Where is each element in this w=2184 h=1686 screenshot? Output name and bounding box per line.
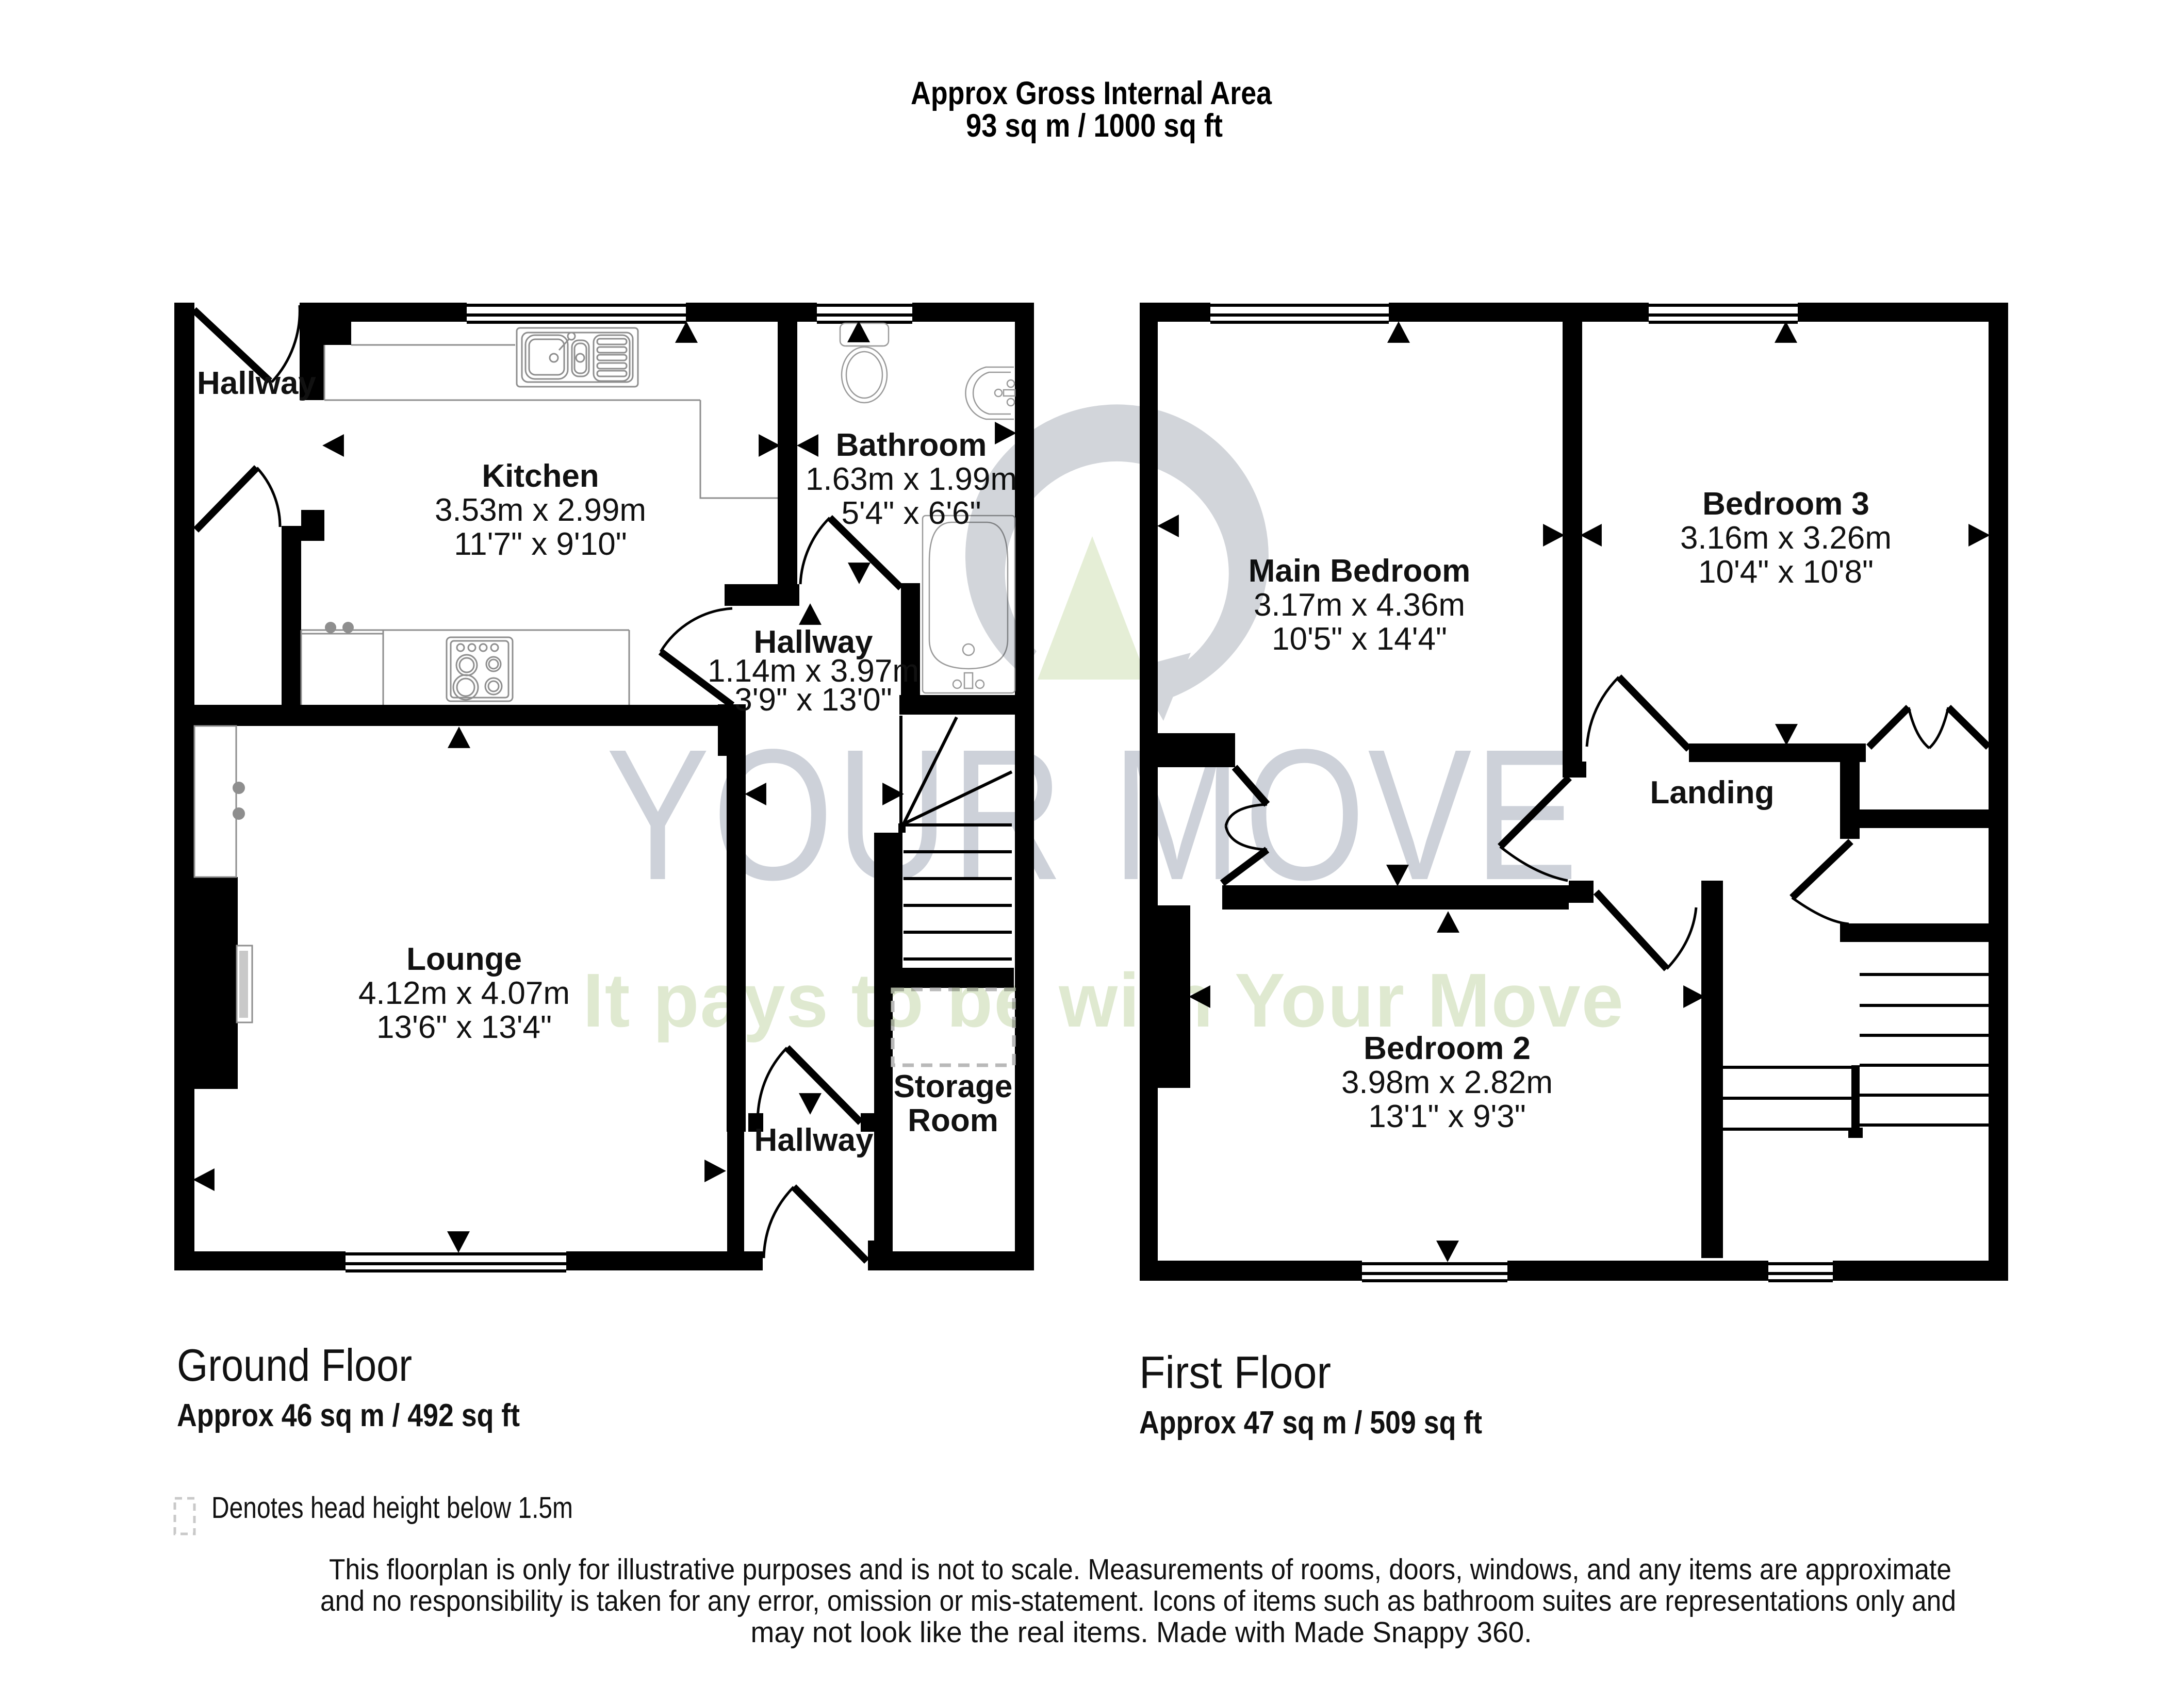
svg-text:Hallway: Hallway [197, 366, 316, 401]
svg-text:4.12m x 4.07m: 4.12m x 4.07m [358, 976, 570, 1011]
svg-text:Bathroom: Bathroom [836, 427, 987, 463]
svg-text:Ground Floor: Ground Floor [177, 1340, 412, 1391]
svg-text:Landing: Landing [1650, 775, 1774, 811]
svg-text:13'6" x 13'4": 13'6" x 13'4" [376, 1010, 552, 1045]
svg-text:First Floor: First Floor [1139, 1347, 1331, 1398]
svg-text:It pays to be with Your Move: It pays to be with Your Move [583, 958, 1624, 1043]
svg-text:Kitchen: Kitchen [482, 458, 599, 494]
svg-text:Lounge: Lounge [406, 941, 522, 977]
svg-text:Hallway: Hallway [754, 1122, 874, 1158]
svg-text:This floorplan is only for ill: This floorplan is only for illustrative … [329, 1553, 1951, 1586]
svg-text:and no responsibility is taken: and no responsibility is taken for any e… [320, 1584, 1956, 1617]
svg-text:13'1" x 9'3": 13'1" x 9'3" [1368, 1099, 1526, 1134]
svg-text:93 sq m / 1000 sq ft: 93 sq m / 1000 sq ft [966, 108, 1223, 144]
svg-text:Approx 47 sq m / 509 sq ft: Approx 47 sq m / 509 sq ft [1139, 1405, 1482, 1441]
svg-text:may not look like the real ite: may not look like the real items. Made w… [751, 1616, 1532, 1649]
svg-text:Storage: Storage [894, 1069, 1013, 1104]
svg-text:11'7" x 9'10": 11'7" x 9'10" [454, 526, 627, 562]
svg-text:Main Bedroom: Main Bedroom [1249, 553, 1471, 589]
svg-text:Approx Gross Internal Area: Approx Gross Internal Area [911, 75, 1272, 111]
svg-text:3.16m x 3.26m: 3.16m x 3.26m [1680, 520, 1892, 556]
svg-text:YOUR MOVE: YOUR MOVE [606, 710, 1581, 919]
svg-text:5'4" x 6'6": 5'4" x 6'6" [841, 495, 981, 531]
svg-text:Bedroom 3: Bedroom 3 [1702, 486, 1869, 522]
svg-text:10'4" x 10'8": 10'4" x 10'8" [1698, 554, 1874, 590]
svg-text:10'5" x 14'4": 10'5" x 14'4" [1272, 621, 1447, 657]
svg-text:3.17m x 4.36m: 3.17m x 4.36m [1254, 587, 1465, 623]
svg-text:3.98m x 2.82m: 3.98m x 2.82m [1341, 1065, 1553, 1100]
svg-text:Room: Room [908, 1103, 998, 1138]
svg-text:Denotes head height below 1.5m: Denotes head height below 1.5m [211, 1491, 573, 1525]
svg-text:3.53m x 2.99m: 3.53m x 2.99m [435, 492, 646, 528]
svg-text:Approx 46 sq m / 492 sq ft: Approx 46 sq m / 492 sq ft [177, 1398, 520, 1433]
